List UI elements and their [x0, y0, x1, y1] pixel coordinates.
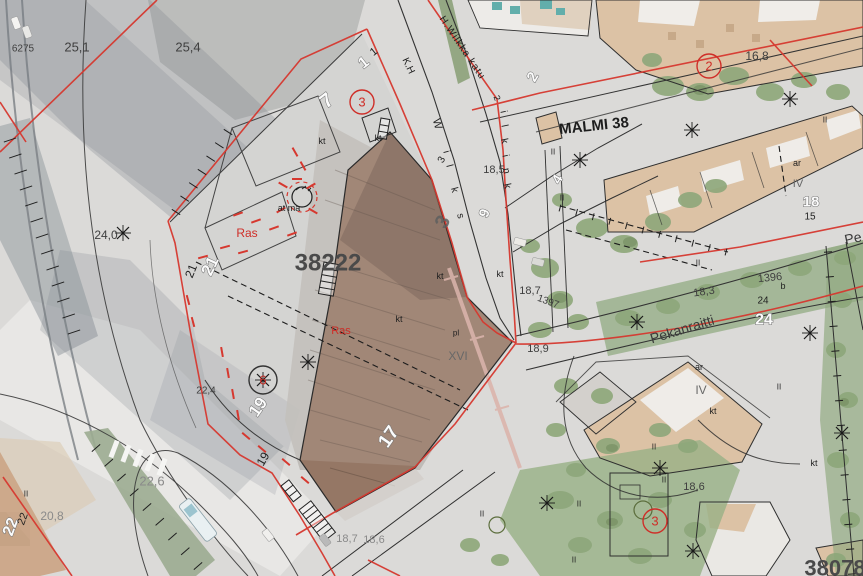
- spot-height-16-8: 16,8: [745, 49, 769, 63]
- hatch-tick: [831, 351, 839, 352]
- hatch-tick: [826, 276, 834, 277]
- tree-icon: [802, 325, 818, 341]
- photo-layer: [0, 0, 863, 576]
- tree-icon: [782, 91, 798, 107]
- svg-text:II: II: [560, 194, 564, 203]
- svg-text:6: 6: [259, 373, 266, 388]
- svg-text:18: 18: [803, 194, 820, 211]
- svg-text:38222: 38222: [295, 250, 362, 277]
- note-ar-b: ar: [793, 158, 801, 168]
- tree-icon: [539, 495, 555, 511]
- svg-text:b: b: [780, 281, 785, 291]
- gate-mark-ii-10: II: [823, 116, 827, 125]
- spot-height-22-4: 22,4: [196, 386, 216, 397]
- map-viewport[interactable]: 627525,125,424,018,518,718,916,818,322,4…: [0, 0, 863, 576]
- spot-height-18-7: 18,7: [519, 285, 540, 297]
- svg-text:II: II: [24, 490, 28, 499]
- hatch-tick: [824, 252, 832, 253]
- spot-height-18-9: 18,9: [527, 343, 548, 355]
- note-kt-7: kt: [810, 458, 818, 468]
- map-canvas: 627525,125,424,018,518,718,916,818,322,4…: [0, 0, 863, 576]
- svg-text:24: 24: [757, 296, 769, 307]
- spot-height-24-0: 24,0: [94, 228, 118, 242]
- svg-text:3: 3: [651, 514, 658, 529]
- hatch-tick: [839, 450, 847, 451]
- svg-text:kt: kt: [810, 458, 818, 468]
- spot-height-18-6: 18,6: [683, 481, 704, 493]
- tree-icon: [684, 122, 700, 138]
- hatch-tick: [833, 376, 841, 377]
- svg-text:1396: 1396: [757, 271, 783, 285]
- spot-height-6275: 6275: [12, 44, 35, 55]
- svg-text:kt: kt: [395, 314, 403, 324]
- gate-mark-ii-11: II: [480, 510, 484, 519]
- tree-icon: [629, 314, 645, 330]
- svg-text:II: II: [696, 259, 700, 268]
- svg-text:II: II: [662, 476, 666, 485]
- hatch-tick: [837, 425, 845, 426]
- hatch-tick: [841, 475, 849, 476]
- tree-icon: [834, 425, 850, 441]
- svg-text:3: 3: [358, 95, 365, 110]
- svg-text:20,8: 20,8: [40, 509, 64, 523]
- svg-text:6275: 6275: [12, 44, 35, 55]
- svg-text:ar: ar: [793, 158, 801, 168]
- svg-text:II: II: [572, 556, 576, 565]
- note-b: b: [780, 281, 785, 291]
- svg-text:kt: kt: [374, 133, 382, 143]
- note-kt-3: kt: [395, 314, 403, 324]
- gate-mark-ii-2: II: [560, 194, 564, 203]
- hatch-tick: [830, 326, 838, 327]
- spot-height-25-4: 25,4: [175, 40, 200, 55]
- svg-text:kt: kt: [709, 406, 717, 416]
- svg-text:16,8: 16,8: [745, 49, 769, 63]
- svg-text:18,9: 18,9: [527, 343, 548, 355]
- svg-text:Ras: Ras: [236, 226, 257, 240]
- hatch-tick: [842, 499, 850, 500]
- roman-floors-iv-b: IV: [793, 178, 804, 190]
- spot-height-20-8: 20,8: [40, 509, 64, 523]
- svg-text:II: II: [652, 443, 656, 452]
- tree-icon: [685, 543, 701, 559]
- svg-text:18,7: 18,7: [336, 533, 357, 545]
- lot-number-24: 24: [755, 312, 773, 329]
- svg-text:IV: IV: [695, 383, 706, 397]
- note-kt-4: kt: [436, 271, 444, 281]
- svg-text:15: 15: [804, 212, 816, 223]
- hatch-tick: [835, 400, 843, 401]
- gate-mark-ii-7: II: [577, 500, 581, 509]
- svg-text:kt: kt: [496, 269, 504, 279]
- gate-mark-ii-6: II: [662, 476, 666, 485]
- easement-ras-1: Ras: [236, 226, 257, 240]
- svg-text:pl: pl: [453, 329, 459, 338]
- gate-mark-ii-5: II: [652, 443, 656, 452]
- note-kt-5: kt: [496, 269, 504, 279]
- hatch-tick: [828, 301, 836, 302]
- svg-text:ar: ar: [695, 362, 703, 372]
- spot-height-22-6: 22,6: [139, 474, 164, 489]
- svg-text:25,1: 25,1: [64, 40, 89, 55]
- svg-text:24: 24: [755, 312, 773, 329]
- note-at-ma: at ma: [278, 203, 301, 213]
- svg-text:18,6: 18,6: [363, 534, 384, 546]
- svg-text:II: II: [577, 500, 581, 509]
- tree-icon: [300, 354, 316, 370]
- lot-number-24-b: 24: [757, 296, 769, 307]
- tree-icon: [652, 460, 668, 476]
- lot-number-15: 15: [804, 212, 816, 223]
- svg-text:Ras: Ras: [331, 325, 351, 337]
- hatch-tick: [844, 524, 852, 525]
- svg-text:at ma: at ma: [278, 203, 301, 213]
- gate-mark-ii-4: II: [777, 383, 781, 392]
- svg-text:II: II: [551, 148, 555, 157]
- svg-text:XVI: XVI: [448, 349, 467, 363]
- lot-number-18: 18: [803, 194, 820, 211]
- svg-text:II: II: [480, 510, 484, 519]
- gate-mark-ii-1: II: [551, 148, 555, 157]
- svg-text:II: II: [823, 116, 827, 125]
- tree-icon: [572, 152, 588, 168]
- block-number-38222: 38222: [295, 250, 362, 277]
- note-kt-1: kt: [318, 136, 326, 146]
- gate-mark-ii-3: II: [696, 259, 700, 268]
- svg-text:25,4: 25,4: [175, 40, 200, 55]
- note-ar: ar: [695, 362, 703, 372]
- svg-text:II: II: [777, 383, 781, 392]
- block-number-38078: 38078: [804, 556, 863, 576]
- spot-height-18-6-b: 18,6: [363, 534, 384, 546]
- svg-text:22,6: 22,6: [139, 474, 164, 489]
- svg-text:24,0: 24,0: [94, 228, 118, 242]
- roman-floors-xvi: XVI: [448, 349, 467, 363]
- easement-ras-2: Ras: [331, 325, 351, 337]
- spot-height-18-7-b: 18,7: [336, 533, 357, 545]
- svg-text:38078: 38078: [804, 556, 863, 576]
- roman-floors-iv: IV: [695, 383, 706, 397]
- svg-text:18,6: 18,6: [683, 481, 704, 493]
- svg-text:2: 2: [705, 59, 712, 74]
- benchmark-1396: 1396: [757, 271, 783, 285]
- note-kt-2: kt: [374, 133, 382, 143]
- hatch-tick: [846, 549, 854, 550]
- svg-text:kt: kt: [318, 136, 326, 146]
- svg-text:IV: IV: [793, 178, 804, 190]
- gate-mark-ii-9: II: [24, 490, 28, 499]
- svg-text:kt: kt: [436, 271, 444, 281]
- gate-mark-ii-8: II: [572, 556, 576, 565]
- note-kt-6: kt: [709, 406, 717, 416]
- svg-text:18,7: 18,7: [519, 285, 540, 297]
- svg-text:22,4: 22,4: [196, 386, 216, 397]
- spot-height-25-1: 25,1: [64, 40, 89, 55]
- note-pl: pl: [453, 329, 459, 338]
